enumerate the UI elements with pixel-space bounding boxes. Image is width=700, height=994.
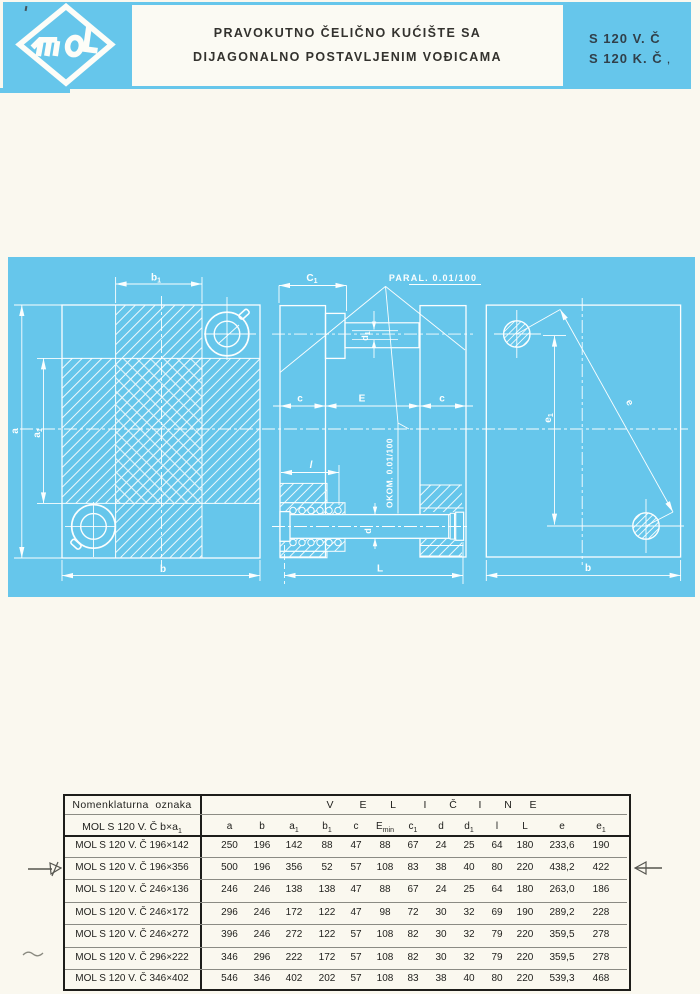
svg-text:l: l — [310, 460, 313, 471]
svg-text:E: E — [359, 394, 366, 405]
svg-text:PARAL. 0.01/100: PARAL. 0.01/100 — [389, 273, 477, 283]
svg-text:c: c — [439, 394, 445, 405]
svg-text:OKOM. 0.01/100: OKOM. 0.01/100 — [385, 438, 395, 508]
svg-text:b: b — [160, 564, 166, 575]
svg-text:c: c — [297, 394, 303, 405]
svg-text:a: a — [10, 428, 21, 434]
svg-text:d: d — [363, 528, 373, 534]
svg-text:L: L — [377, 564, 383, 575]
svg-text:b: b — [585, 563, 591, 574]
